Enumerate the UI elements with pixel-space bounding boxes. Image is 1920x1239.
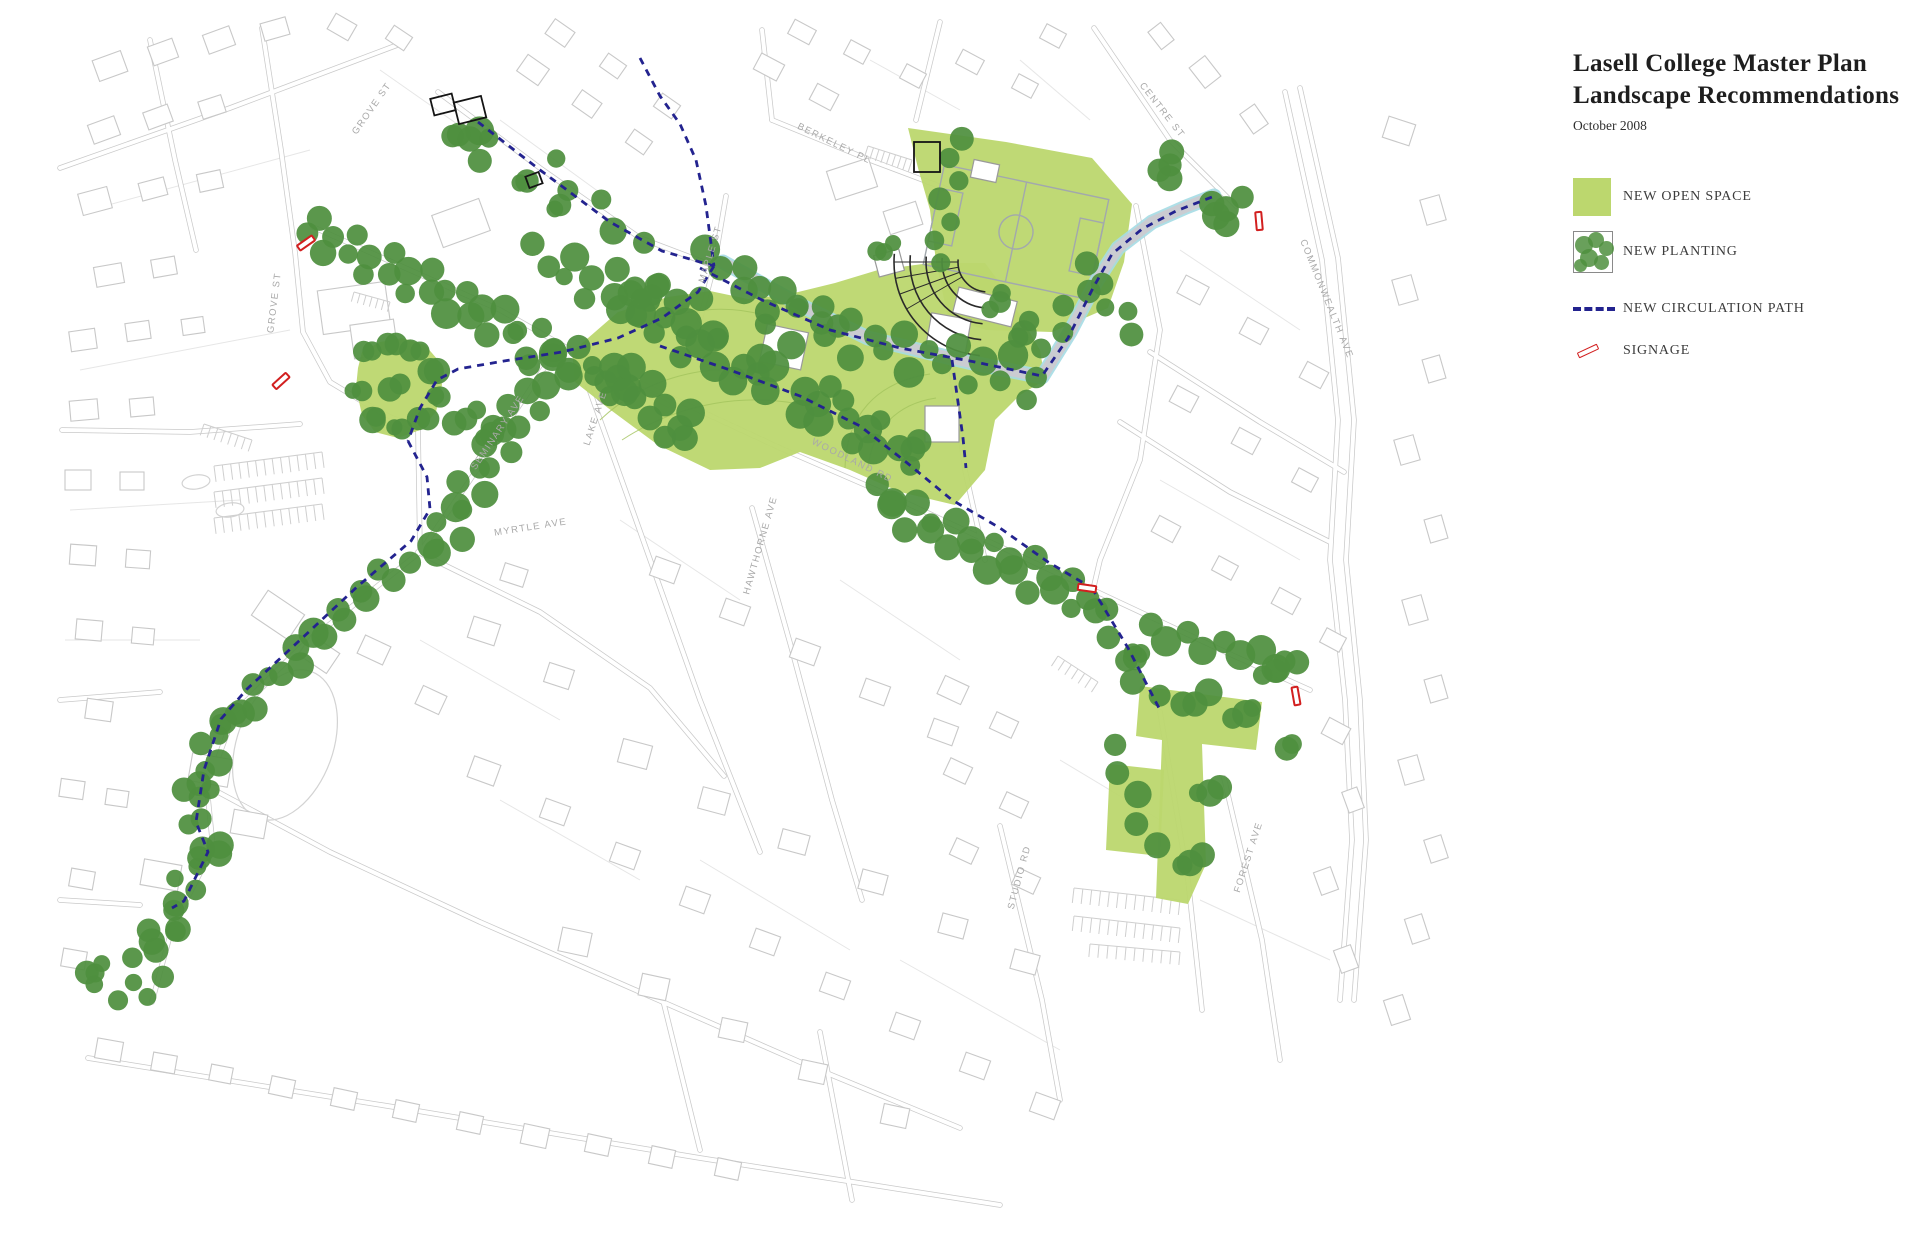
open-space-swatch: [1573, 178, 1623, 216]
street-label: MYRTLE AVE: [493, 516, 568, 538]
page-title: Lasell College Master Plan Landscape Rec…: [1573, 48, 1913, 112]
dashed-path-icon: [1573, 307, 1615, 311]
planting-swatch: [1573, 231, 1623, 273]
plan-date: October 2008: [1573, 118, 1913, 134]
street-label: GROVE ST: [265, 272, 283, 334]
title-line-2: Landscape Recommendations: [1573, 80, 1913, 112]
legend-item-circulation: NEW CIRCULATION PATH: [1573, 301, 1913, 317]
legend-label: NEW OPEN SPACE: [1623, 189, 1752, 205]
signage-swatch: [1573, 348, 1623, 354]
signage-marker-icon: [1577, 344, 1599, 359]
street-label: BERKELEY PL: [795, 121, 872, 166]
legend-item-open-space: NEW OPEN SPACE: [1573, 178, 1913, 216]
legend-item-signage: SIGNAGE: [1573, 343, 1913, 359]
legend-label: SIGNAGE: [1623, 343, 1690, 359]
legend-label: NEW PLANTING: [1623, 244, 1738, 260]
open-space-color-icon: [1573, 178, 1611, 216]
street-label: GROVE ST: [350, 80, 394, 136]
legend: NEW OPEN SPACE NEW PLANTING NEW CIRCULAT…: [1573, 178, 1913, 359]
street-label: COMMONWEALTH AVE: [1297, 238, 1355, 360]
signage-marker: [1255, 212, 1263, 230]
title-line-1: Lasell College Master Plan: [1573, 48, 1913, 80]
legend-item-planting: NEW PLANTING: [1573, 231, 1913, 273]
signage-marker: [1291, 687, 1300, 706]
title-legend-panel: Lasell College Master Plan Landscape Rec…: [1573, 48, 1913, 377]
legend-label: NEW CIRCULATION PATH: [1623, 301, 1805, 317]
signage-marker: [272, 373, 289, 390]
signage-marker: [1078, 584, 1097, 592]
circulation-swatch: [1573, 307, 1623, 311]
tree-cluster-icon: [1573, 231, 1613, 273]
master-plan-page: GROVE STGROVE STBERKELEY PLMAPLE STCENTR…: [0, 0, 1920, 1239]
